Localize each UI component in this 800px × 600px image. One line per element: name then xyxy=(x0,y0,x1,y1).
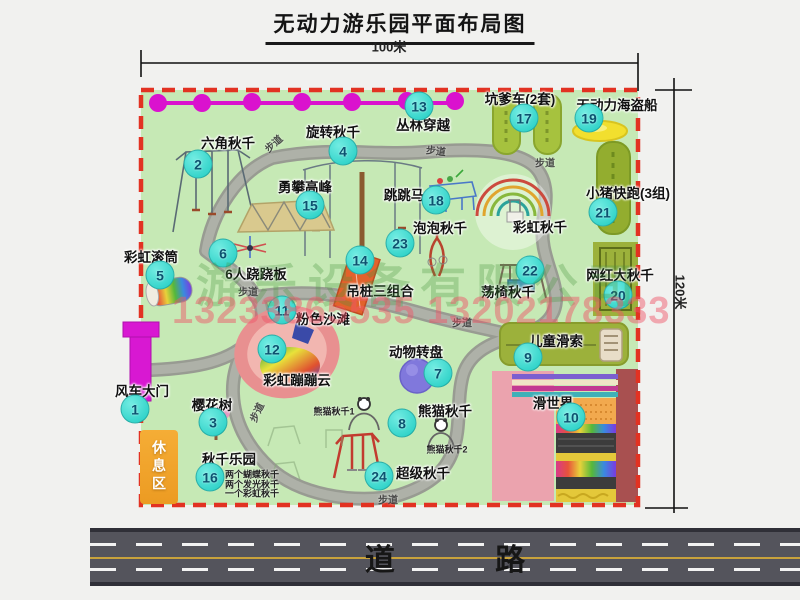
slide-world-icon xyxy=(492,369,638,502)
footpath-label-0: 步道 xyxy=(261,131,286,156)
rest-area: 休息区 xyxy=(140,430,178,504)
footpath-label-1: 步道 xyxy=(425,141,446,158)
footpath-label-2: 步道 xyxy=(535,155,555,170)
attraction-label-8: 熊猫秋千 xyxy=(418,400,472,420)
attraction-marker-15: 15 xyxy=(296,191,325,220)
attraction-label-12: 彩虹蹦蹦云 xyxy=(263,369,331,389)
extra-label-2: 熊猫秋千2 xyxy=(426,443,467,456)
attraction-label-4: 旋转秋千 xyxy=(306,121,360,141)
attraction-label-2: 六角秋千 xyxy=(201,132,255,152)
footpath-label-5: 步道 xyxy=(245,400,267,424)
attraction-marker-3: 3 xyxy=(199,408,228,437)
road: 道 路 xyxy=(90,528,800,586)
attraction-marker-9: 9 xyxy=(514,343,543,372)
attraction-label-23: 泡泡秋千 xyxy=(413,217,467,237)
attraction-marker-2: 2 xyxy=(184,150,213,179)
footpath-label-6: 步道 xyxy=(378,492,398,507)
attraction-marker-5: 5 xyxy=(146,261,175,290)
dimension-width-label: 100米 xyxy=(372,37,407,56)
attraction-marker-7: 7 xyxy=(424,359,453,388)
park-plan-image: 无动力游乐园平面布局图 100米 120米 xyxy=(0,0,800,600)
attraction-marker-21: 21 xyxy=(589,198,618,227)
attraction-marker-10: 10 xyxy=(557,403,586,432)
attraction-marker-13: 13 xyxy=(405,92,434,121)
attraction-marker-19: 19 xyxy=(575,104,604,133)
watermark-phone: 13233865535 13202178333 xyxy=(172,290,671,333)
attraction-label-18: 跳跳马 xyxy=(384,184,425,204)
attraction-label-24: 超级秋千 xyxy=(396,462,450,482)
extra-label-0: 彩虹秋千 xyxy=(513,216,567,236)
rainbow-swing-icon xyxy=(475,174,551,250)
dimension-height-label: 120米 xyxy=(672,275,691,310)
road-label: 道 路 xyxy=(319,535,571,579)
attraction-marker-18: 18 xyxy=(422,186,451,215)
extra-label-1: 熊猫秋千1 xyxy=(313,405,354,418)
attraction-marker-1: 1 xyxy=(121,395,150,424)
rest-area-label: 休息区 xyxy=(149,440,169,494)
attraction-marker-17: 17 xyxy=(510,104,539,133)
swing-park-note-2: 一个彩虹秋千 xyxy=(225,487,279,500)
attraction-marker-16: 16 xyxy=(196,463,225,492)
swing-paradise-icon xyxy=(268,426,342,482)
attraction-marker-8: 8 xyxy=(388,409,417,438)
attraction-marker-4: 4 xyxy=(329,137,358,166)
attraction-marker-24: 24 xyxy=(365,462,394,491)
attraction-marker-12: 12 xyxy=(258,335,287,364)
